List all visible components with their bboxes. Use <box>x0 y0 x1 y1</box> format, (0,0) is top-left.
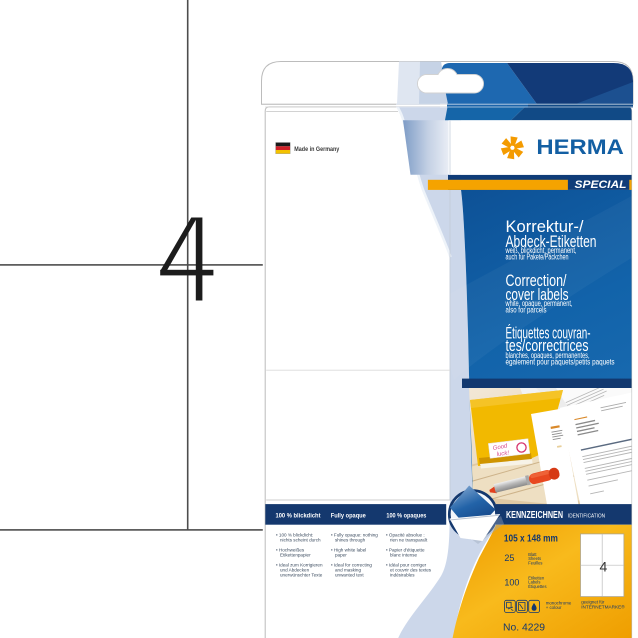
svg-text:blanc intense: blanc intense <box>390 553 418 558</box>
svg-text:IDENTIFICATION: IDENTIFICATION <box>568 513 605 519</box>
svg-text:shines through: shines through <box>335 538 366 543</box>
svg-text:HERMA: HERMA <box>536 136 624 159</box>
svg-text:auch für Pakete/Päckchen: auch für Pakete/Päckchen <box>506 253 569 262</box>
svg-text:4: 4 <box>600 559 608 575</box>
svg-text:unerwünschter Texte: unerwünschter Texte <box>280 572 323 577</box>
svg-text:Étiquettes: Étiquettes <box>528 584 546 589</box>
svg-text:No. 4229: No. 4229 <box>503 622 545 633</box>
svg-text:unwanted text: unwanted text <box>335 572 364 577</box>
svg-text:Fully opaque: Fully opaque <box>331 513 366 520</box>
svg-text:100 % blickdicht: 100 % blickdicht <box>276 513 322 520</box>
svg-text:Feuilles: Feuilles <box>528 560 542 565</box>
svg-text:rien ne transparaît: rien ne transparaît <box>390 538 428 543</box>
svg-text:Made in Germany: Made in Germany <box>294 146 339 153</box>
svg-text:+ colour: + colour <box>546 605 562 610</box>
svg-text:indésirables: indésirables <box>390 572 415 577</box>
svg-text:nichts scheint durch: nichts scheint durch <box>280 538 321 543</box>
svg-text:également pour paquets/petits: également pour paquets/petits paquets <box>506 358 615 367</box>
svg-text:100 % opaques: 100 % opaques <box>386 513 426 520</box>
svg-text:paper: paper <box>335 553 347 558</box>
svg-text:KENNZEICHNEN: KENNZEICHNEN <box>506 510 563 521</box>
svg-text:Etikettenpapier: Etikettenpapier <box>280 553 311 558</box>
svg-text:SPECIAL: SPECIAL <box>575 179 627 191</box>
svg-text:100: 100 <box>504 577 519 587</box>
svg-text:INTERNETMARKE®: INTERNETMARKE® <box>581 603 625 609</box>
svg-text:105 x 148 mm: 105 x 148 mm <box>504 534 558 545</box>
svg-text:25: 25 <box>504 553 514 563</box>
svg-text:also for parcels: also for parcels <box>506 305 547 314</box>
